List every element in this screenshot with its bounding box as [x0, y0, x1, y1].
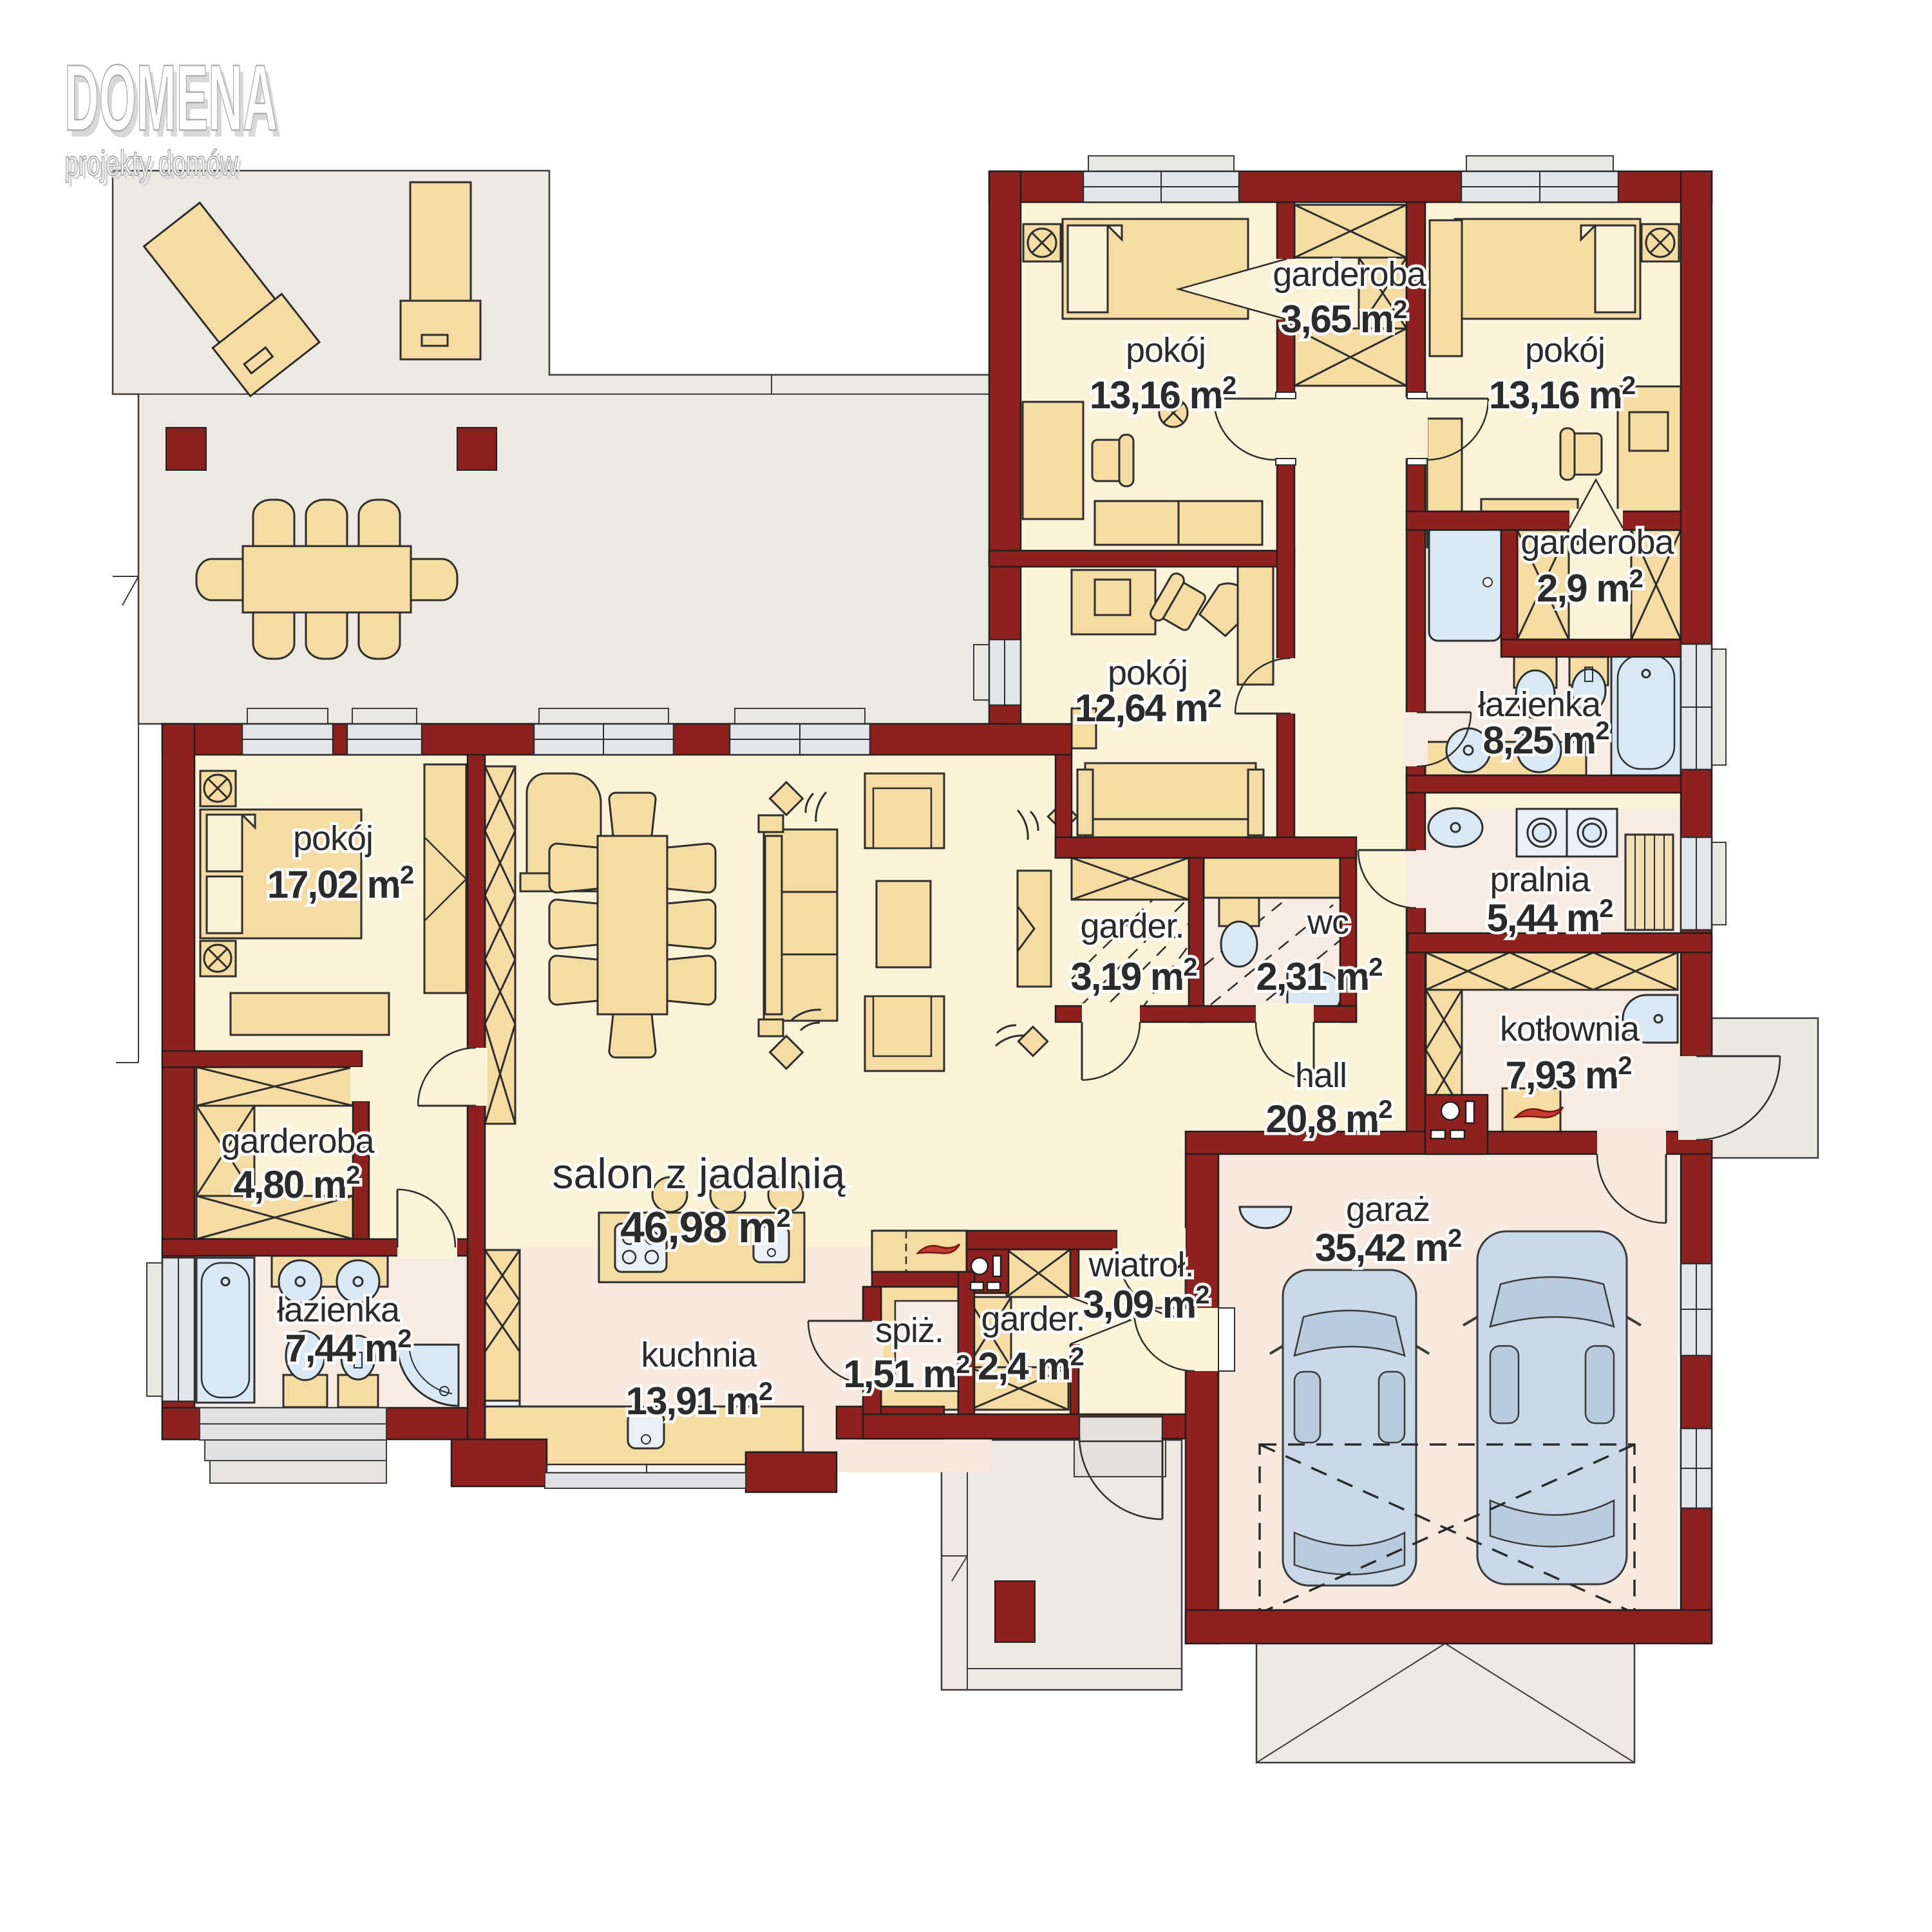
svg-text:13,16 m2: 13,16 m2	[1090, 372, 1236, 417]
svg-text:2,9 m2: 2,9 m2	[1537, 565, 1642, 610]
svg-text:1,51 m2: 1,51 m2	[843, 1350, 969, 1396]
svg-text:DOMENA: DOMENA	[64, 45, 278, 151]
svg-text:35,42 m2: 35,42 m2	[1315, 1224, 1461, 1269]
svg-text:pokój: pokój	[1525, 331, 1605, 370]
svg-text:12,64 m2: 12,64 m2	[1075, 685, 1221, 730]
svg-text:pokój: pokój	[1126, 331, 1206, 370]
svg-text:7,93 m2: 7,93 m2	[1505, 1052, 1631, 1097]
svg-text:2,31 m2: 2,31 m2	[1256, 953, 1382, 998]
svg-text:46,98 m2: 46,98 m2	[620, 1203, 790, 1252]
svg-text:garaż: garaż	[1346, 1190, 1430, 1229]
svg-text:salon z jadalnią: salon z jadalnią	[553, 1150, 846, 1197]
svg-text:2,4 m2: 2,4 m2	[978, 1343, 1083, 1388]
svg-text:3,65 m2: 3,65 m2	[1280, 296, 1406, 341]
svg-text:spiż.: spiż.	[875, 1311, 943, 1350]
svg-text:garderoba: garderoba	[221, 1122, 375, 1160]
svg-text:7,44 m2: 7,44 m2	[285, 1325, 411, 1370]
svg-text:3,19 m2: 3,19 m2	[1070, 953, 1197, 998]
svg-text:wiatroł.: wiatroł.	[1088, 1245, 1193, 1284]
svg-text:kotłownia: kotłownia	[1500, 1010, 1640, 1048]
svg-text:łazienka: łazienka	[277, 1291, 401, 1329]
svg-text:17,02 m2: 17,02 m2	[267, 861, 413, 906]
svg-text:pokój: pokój	[293, 819, 373, 858]
svg-text:5,44 m2: 5,44 m2	[1486, 895, 1613, 940]
svg-text:3,09 m2: 3,09 m2	[1083, 1281, 1209, 1326]
svg-text:łazienka: łazienka	[1478, 685, 1602, 724]
svg-text:kuchnia: kuchnia	[641, 1336, 757, 1374]
svg-text:13,91 m2: 13,91 m2	[626, 1378, 772, 1423]
svg-text:pralnia: pralnia	[1490, 860, 1591, 899]
svg-text:8,25 m2: 8,25 m2	[1482, 717, 1609, 762]
svg-text:hall: hall	[1295, 1056, 1347, 1095]
svg-text:20,8 m2: 20,8 m2	[1265, 1095, 1392, 1141]
svg-text:wc: wc	[1307, 903, 1349, 942]
svg-text:garderoba: garderoba	[1520, 523, 1674, 562]
svg-text:4,80 m2: 4,80 m2	[233, 1161, 359, 1206]
svg-text:garder.: garder.	[981, 1300, 1084, 1338]
svg-text:garderoba: garderoba	[1273, 255, 1426, 294]
svg-text:13,16 m2: 13,16 m2	[1489, 372, 1635, 417]
svg-text:projekty domów: projekty domów	[64, 144, 238, 183]
svg-text:garder.: garder.	[1080, 907, 1184, 945]
